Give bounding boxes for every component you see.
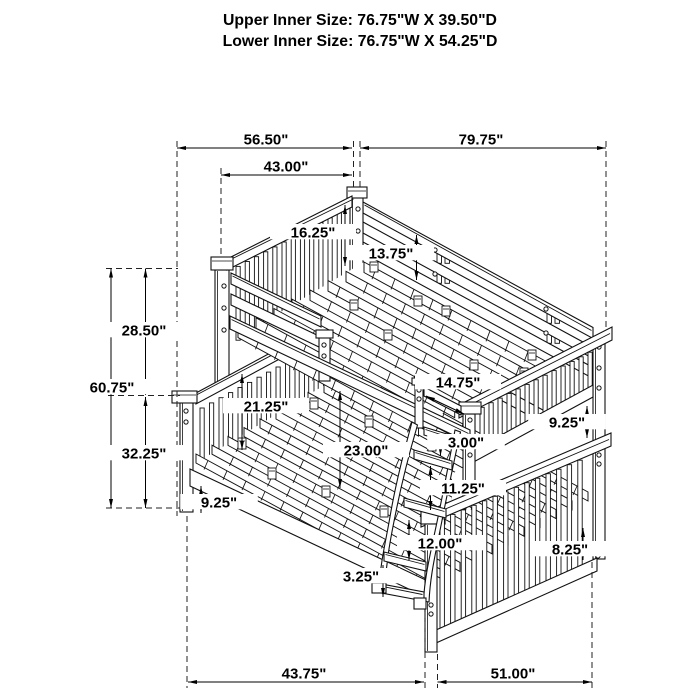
svg-text:79.75": 79.75" xyxy=(459,132,504,149)
svg-text:43.00": 43.00" xyxy=(264,159,309,176)
svg-text:21.25": 21.25" xyxy=(244,399,289,416)
svg-text:23.00": 23.00" xyxy=(344,443,389,460)
svg-text:14.75": 14.75" xyxy=(436,375,481,392)
svg-text:60.75": 60.75" xyxy=(90,380,135,397)
svg-text:9.25": 9.25" xyxy=(201,495,237,512)
svg-text:51.00": 51.00" xyxy=(491,666,536,683)
svg-text:Lower Inner Size: 76.75"W X 54: Lower Inner Size: 76.75"W X 54.25"D xyxy=(223,33,498,50)
svg-text:13.75": 13.75" xyxy=(369,246,414,263)
svg-text:56.50": 56.50" xyxy=(244,132,289,149)
svg-text:3.00": 3.00" xyxy=(448,435,484,452)
svg-text:12.00": 12.00" xyxy=(418,536,463,553)
svg-text:32.25": 32.25" xyxy=(122,446,167,463)
svg-text:8.25": 8.25" xyxy=(552,542,588,559)
svg-text:3.25": 3.25" xyxy=(343,569,379,586)
svg-text:11.25": 11.25" xyxy=(441,481,485,498)
svg-text:9.25": 9.25" xyxy=(549,415,585,432)
svg-text:43.75": 43.75" xyxy=(282,666,327,683)
svg-text:16.25": 16.25" xyxy=(291,225,336,242)
svg-text:Upper Inner Size: 76.75"W X 39: Upper Inner Size: 76.75"W X 39.50"D xyxy=(223,12,497,29)
svg-text:28.50": 28.50" xyxy=(122,323,167,340)
